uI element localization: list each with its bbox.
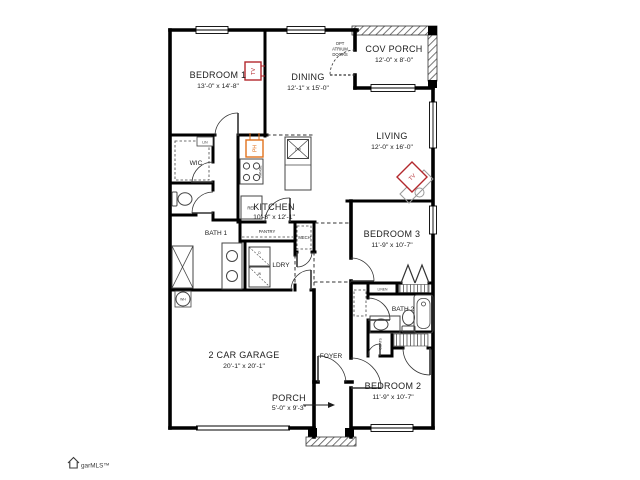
living-dims: 12'-0" x 16'-0": [371, 144, 413, 151]
bedroom2-label: BEDROOM 2: [365, 381, 422, 391]
mls-watermark: garMLS™: [68, 458, 110, 470]
ph-marker-label: PH: [253, 145, 259, 152]
house-icon: [68, 458, 79, 469]
pantry-label: PANTRY: [259, 229, 276, 234]
bedroom2-window: [371, 425, 413, 432]
bedroom3-door: [351, 258, 374, 281]
tv-marker-bedroom1-label: TV: [251, 68, 257, 75]
dining-window: [287, 27, 325, 34]
garage-dims: 20'-1" x 20'-1": [223, 363, 265, 370]
living-window: [430, 102, 437, 148]
bedroom1-label: BEDROOM 1: [190, 70, 247, 80]
wic-label: WIC: [190, 160, 203, 167]
porch-wall-window: [371, 85, 415, 92]
bedroom1-window: [196, 27, 228, 34]
ref-label: REF: [247, 206, 256, 211]
linen-shelf: [399, 285, 429, 293]
bedroom2-closet-door: [403, 348, 430, 375]
ldry-label: LDRY: [272, 262, 290, 269]
floor-plan: TV PH TV BEDROOM 1 13'-0" x 14'-8" DININ…: [0, 0, 640, 480]
kitchen-island: [285, 137, 311, 190]
bedroom1-door: [215, 113, 238, 136]
bedroom3-window: [430, 206, 437, 234]
bath1-door: [192, 192, 213, 213]
kitchen-dims: 10'-8" x 12'-1": [253, 214, 295, 221]
coats-label: COATS: [379, 338, 383, 350]
opt-atrium-line2: ATRIUM: [332, 47, 348, 52]
markers: TV PH TV: [245, 62, 427, 192]
cov-porch-label: COV PORCH: [365, 44, 422, 54]
tub-bath1: [172, 246, 193, 288]
ph-marker-kitchen: PH: [246, 133, 263, 157]
attic-access: [354, 290, 366, 316]
porch-label: PORCH: [272, 393, 306, 403]
lin-label: LIN: [202, 141, 208, 145]
dw-label: DW: [295, 148, 301, 152]
bedroom2-closet-shelf: [394, 334, 428, 346]
vanity-bath2: [370, 316, 400, 333]
mech-label: MECH: [298, 235, 310, 240]
garage-label: 2 CAR GARAGE: [208, 350, 279, 360]
bedroom2-dims: 11'-9" x 10'-7": [372, 394, 414, 401]
tv-marker-bedroom1: TV: [245, 62, 265, 80]
opt-atrium-line3: DOORS: [332, 52, 348, 57]
bedroom1-dims: 13'-0" x 14'-8": [197, 83, 239, 90]
dining-label: DINING: [291, 72, 324, 82]
porch-arrow: [303, 402, 335, 408]
tub-bath2: [414, 295, 433, 333]
living-label: LIVING: [376, 131, 407, 141]
bedroom3-dims: 11'-9" x 10'-7": [371, 242, 413, 249]
floor-plan-drawing: TV PH TV BEDROOM 1 13'-0" x 14'-8" DININ…: [0, 0, 640, 480]
toilet-bath2: [402, 310, 415, 332]
dryer-label: D: [258, 251, 261, 255]
garage-door-opening: [196, 426, 290, 430]
opt-atrium-line1: OPT: [336, 41, 345, 46]
foyer-label: FOYER: [320, 353, 343, 360]
bath2-door: [368, 298, 390, 320]
wh-label: WH: [180, 298, 186, 302]
porch-dims: 5'-0" x 9'-3": [272, 405, 307, 412]
toilet-bath1: [172, 192, 192, 206]
kitchen-label: KITCHEN: [253, 202, 295, 212]
mech-door: [297, 252, 312, 267]
range-label: RANGE: [259, 165, 263, 178]
bedroom3-label: BEDROOM 3: [364, 229, 421, 239]
bath1-label: BATH 1: [205, 230, 228, 237]
cov-porch-dims: 12'-0" x 8'-0": [375, 57, 414, 64]
vanity-bath1: [222, 243, 242, 289]
bedroom3-closet-doors: [401, 265, 429, 283]
tv-marker-living: TV: [397, 162, 427, 192]
dining-dims: 12'-1" x 15'-0": [287, 85, 329, 92]
linen-label: LINEN: [378, 288, 389, 292]
bath2-label: BATH 2: [392, 306, 415, 313]
washer-label: W: [258, 272, 262, 276]
watermark-text: garMLS™: [81, 463, 110, 470]
